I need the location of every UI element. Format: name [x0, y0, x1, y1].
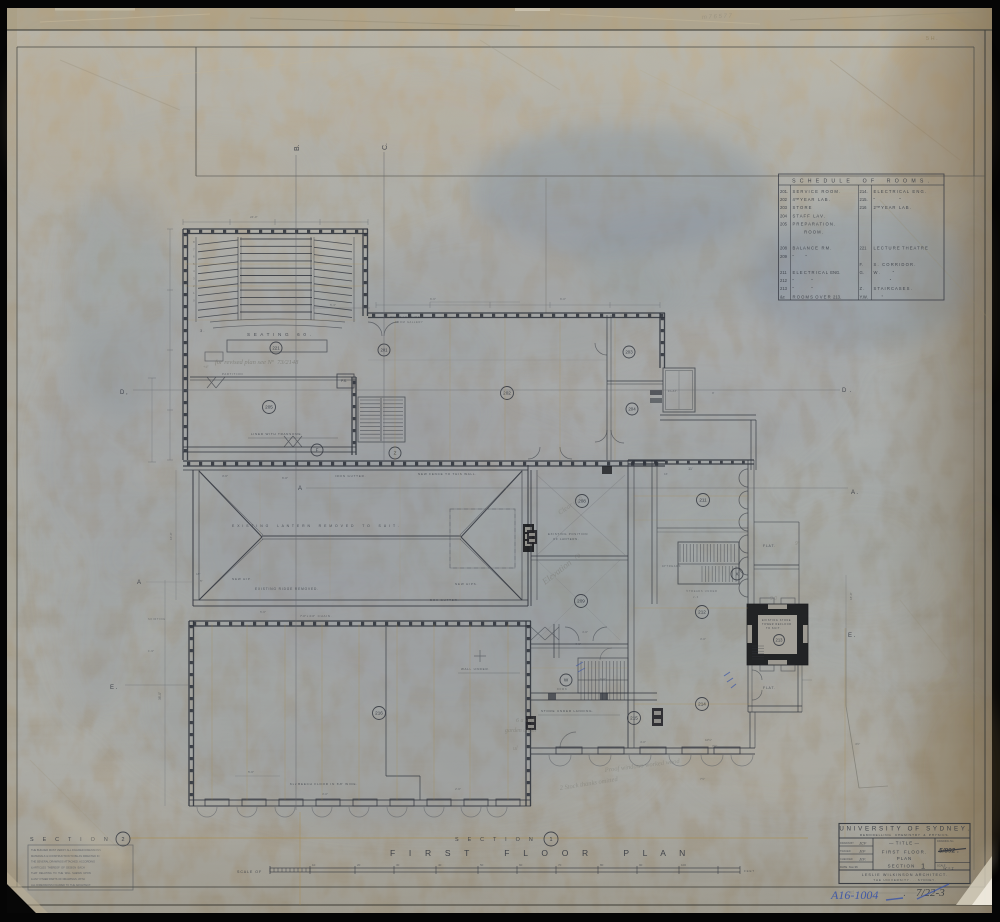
- svg-text:9 0: 9 0: [770, 596, 777, 602]
- svg-text:6'-6": 6'-6": [430, 297, 436, 301]
- svg-text:L E C T U R E T H E A T R E: L E C T U R E T H E A T R E: [874, 246, 929, 251]
- svg-text:ul: ul: [513, 746, 518, 752]
- svg-text:THE SEVERAL DRAWINGS ATTACHED.: THE SEVERAL DRAWINGS ATTACHED. ACCORDING: [31, 860, 95, 864]
- svg-text:38'-0": 38'-0": [158, 692, 162, 700]
- svg-text:2™ Y E A R L A B .: 2™ Y E A R L A B .: [874, 205, 911, 210]
- svg-text:6 x 2 B E E C H F L O O R: 6 x 2 B E E C H F L O O R I N 6'-6" W I …: [290, 782, 357, 786]
- svg-text:P A R T I T I O N: P A R T I T I O N: [222, 372, 243, 376]
- svg-text:5": 5": [200, 579, 203, 583]
- svg-text:A .: A .: [851, 490, 858, 496]
- svg-text:R O O M S O V E R 213.: R O O M S O V E R 213.: [793, 294, 842, 299]
- svg-text:N E W H I P S .: N E W H I P S .: [455, 582, 477, 586]
- svg-text:B A L A N C E R M .: B A L A N C E R M .: [793, 246, 832, 251]
- svg-text:P L A N: P L A N: [897, 856, 911, 861]
- svg-text:TRACED: TRACED: [840, 849, 851, 853]
- svg-text:E L E C T R I C A L E N G .: E L E C T R I C A L E N G .: [874, 189, 927, 194]
- svg-text:L I N E D W I T H T R A N: L I N E D W I T H T R A N S O M E .: [251, 432, 302, 436]
- svg-text:S K I R T I N G: S K I R T I N G: [148, 617, 165, 621]
- svg-text:205: 205: [780, 221, 788, 226]
- svg-text:50: 50: [480, 863, 484, 867]
- svg-text:D ,: D ,: [120, 390, 128, 396]
- svg-text:D O W N: D O W N: [557, 688, 567, 691]
- svg-text:F R O M G A L L E R Y: F R O M G A L L E R Y: [395, 320, 423, 324]
- svg-text:& ARTICLES THEREOF OF DESIG: & ARTICLES THEREOF OF DESIGN EACH: [31, 865, 85, 869]
- svg-text:I R O N G U T T E R .: I R O N G U T T E R .: [335, 474, 366, 478]
- svg-text:A: A: [137, 580, 141, 586]
- svg-text:1: 1: [921, 862, 925, 871]
- svg-text:A16-1004: A16-1004: [830, 888, 878, 902]
- svg-text:S E R V I C E R O O M .: S E R V I C E R O O M .: [793, 189, 841, 194]
- svg-text:G.: G.: [860, 270, 864, 275]
- svg-text:F: F: [316, 448, 319, 453]
- svg-text:3'-6": 3'-6": [222, 474, 228, 478]
- svg-text:N E W H I P .: N E W H I P .: [232, 577, 252, 581]
- svg-text:JcF.: JcF.: [858, 857, 866, 862]
- svg-text:221: 221: [860, 246, 868, 251]
- svg-text:B.: B.: [294, 144, 301, 151]
- svg-text:F L A T .: F L A T .: [668, 389, 678, 393]
- svg-text:MATERIALS & CONSTRUCTION TO BE: MATERIALS & CONSTRUCTION TO BE AS DIRECT…: [31, 854, 99, 858]
- svg-text:212: 212: [698, 610, 706, 615]
- svg-text:5'-6": 5'-6": [248, 770, 254, 774]
- svg-text:S E C T I O N: S E C T I O N: [455, 837, 535, 843]
- svg-text:2 - 6: 2 - 6: [693, 595, 699, 599]
- svg-text:— T I T L E —: — T I T L E —: [889, 841, 920, 846]
- svg-text:215.: 215.: [860, 197, 868, 202]
- svg-text:”: ”: [874, 278, 892, 283]
- svg-text:W . ”: W . ”: [874, 270, 895, 275]
- svg-text:7½": 7½": [712, 744, 717, 748]
- svg-text:E X I S T I N G S T O N E: E X I S T I N G S T O N E: [762, 619, 791, 622]
- svg-text:212: 212: [780, 278, 788, 283]
- svg-text:216: 216: [860, 205, 868, 210]
- svg-text:S C A L E O F: S C A L E O F: [237, 870, 262, 874]
- svg-text:DATE Nov 36: DATE Nov 36: [840, 865, 858, 869]
- svg-text:203: 203: [780, 205, 788, 210]
- svg-text:F L A T .: F L A T .: [763, 686, 775, 690]
- svg-text:213: 213: [780, 286, 788, 291]
- svg-text:202: 202: [780, 197, 788, 202]
- svg-text:6'-6": 6'-6": [600, 677, 606, 681]
- svg-text:18'-0": 18'-0": [849, 592, 853, 600]
- svg-text:R E M O D E L L I N G C H: R E M O D E L L I N G C H E M I S T R Y …: [860, 833, 949, 837]
- svg-text:18": 18": [196, 572, 200, 576]
- svg-text:.: .: [903, 888, 906, 899]
- svg-text:P R E P A R A T I O N .: P R E P A R A T I O N .: [793, 221, 836, 226]
- svg-text:216: 216: [375, 711, 383, 716]
- svg-text:DRAWN BY: DRAWN BY: [840, 841, 854, 845]
- svg-text:D .: D .: [842, 388, 852, 394]
- svg-text:24'-0": 24'-0": [250, 215, 258, 219]
- svg-text:DRAWING No: DRAWING No: [937, 839, 954, 843]
- svg-text:S T A F F L A V .: S T A F F L A V .: [793, 213, 826, 218]
- svg-text:JcF: JcF: [858, 849, 866, 854]
- svg-text:221: 221: [272, 346, 280, 351]
- svg-text:11': 11': [688, 466, 693, 471]
- svg-text:100: 100: [681, 863, 686, 867]
- svg-text:” ”: ” ”: [793, 254, 808, 259]
- svg-text:1: 1: [550, 837, 553, 843]
- svg-text:garden under: garden under: [505, 728, 538, 734]
- svg-text:5 H .: 5 H .: [926, 36, 938, 42]
- svg-text:E L E C T R I C A L ENG.: E L E C T R I C A L ENG.: [793, 270, 841, 275]
- svg-text:215: 215: [630, 716, 638, 721]
- svg-text:S E C T I O N: S E C T I O N: [888, 864, 915, 869]
- svg-text:T O W E R R E F L O O R: T O W E R R E F L O O R: [762, 623, 791, 626]
- svg-text:9°: 9°: [795, 541, 800, 547]
- svg-text:10½": 10½": [705, 738, 712, 742]
- svg-text:+4′: +4′: [203, 364, 209, 369]
- svg-text:204: 204: [628, 407, 636, 412]
- svg-text:6 a with: 6 a with: [516, 718, 535, 724]
- svg-text:202: 202: [503, 391, 511, 396]
- svg-text:40: 40: [438, 863, 442, 867]
- svg-text:THAT RELATING TO THE WILL: THAT RELATING TO THE WILL SHEWN UPON: [31, 871, 91, 875]
- svg-text:” ”: ” ”: [793, 286, 814, 291]
- svg-text:16'' T R E A D S: 16'' T R E A D S: [662, 564, 681, 568]
- svg-text:U N I V E R S I T Y O F S: U N I V E R S I T Y O F S Y D N E Y .: [839, 826, 969, 833]
- svg-text:R O O M .: R O O M .: [793, 230, 823, 235]
- svg-text:F L A T .: F L A T .: [763, 544, 775, 548]
- svg-text:P.S.: P.S.: [341, 379, 347, 383]
- svg-text:7½": 7½": [700, 777, 705, 781]
- svg-text:E .: E .: [848, 633, 856, 639]
- svg-text:4½": 4½": [855, 742, 860, 746]
- svg-text:”: ”: [874, 294, 884, 299]
- svg-text:90: 90: [639, 863, 643, 867]
- svg-text:201.: 201.: [780, 189, 788, 194]
- svg-text:16'-0": 16'-0": [169, 532, 173, 540]
- svg-text:B O X G U T T E R .: B O X G U T T E R .: [430, 598, 459, 602]
- svg-text:10: 10: [312, 863, 316, 867]
- svg-text:4'-6": 4'-6": [582, 630, 588, 634]
- svg-text:80: 80: [600, 863, 604, 867]
- svg-text:7'-0" x 4'-6" C H A I N .: 7'-0" x 4'-6" C H A I N .: [300, 614, 332, 618]
- svg-text:W: W: [564, 678, 569, 683]
- svg-text:O F L A N T E R N .: O F L A N T E R N .: [553, 537, 579, 541]
- svg-text:E X I S T I N G R I D G E: E X I S T I N G R I D G E R E M O V E D …: [255, 587, 318, 591]
- svg-text:3'-0": 3'-0": [700, 637, 706, 641]
- svg-text:F I R S T F L O O R .: F I R S T F L O O R .: [882, 850, 927, 855]
- svg-text:½ T R E A D S U N D E R: ½ T R E A D S U N D E R: [686, 589, 717, 593]
- svg-text:1'-9": 1'-9": [148, 649, 154, 653]
- svg-text:L E S L I E W I L K I N S O: L E S L I E W I L K I N S O N A R C H I …: [862, 873, 947, 877]
- svg-text:16': 16': [664, 472, 668, 476]
- svg-text:A: A: [298, 486, 302, 492]
- svg-text:4'-0": 4'-0": [640, 740, 646, 744]
- svg-text:E .: E .: [110, 685, 118, 691]
- svg-text:S T O R E: S T O R E: [793, 205, 812, 210]
- svg-text:T O S U I T .: T O S U I T .: [766, 627, 781, 630]
- svg-text:F.: F.: [860, 262, 863, 267]
- svg-text:” ”: ” ”: [874, 197, 902, 202]
- svg-text:213: 213: [776, 638, 784, 643]
- svg-text:S T O R E U N D E R L A N: S T O R E U N D E R L A N D I N G .: [541, 709, 593, 713]
- svg-text:&c: &c: [780, 294, 785, 299]
- svg-text:S T A I R C A S E S .: S T A I R C A S E S .: [874, 286, 912, 291]
- svg-text:⅛" = 1': ⅛" = 1': [943, 867, 954, 871]
- svg-text:F I R S T F L O O: F I R S T F L O O R P L A N: [390, 848, 688, 858]
- svg-text:30: 30: [396, 863, 400, 867]
- svg-text:F E E T: F E E T: [744, 869, 754, 873]
- svg-text:S C H E D U L E O F R O: S C H E D U L E O F R O O M S .: [792, 178, 930, 184]
- svg-text:JCF: JCF: [858, 841, 867, 846]
- svg-text:3 .: 3 .: [200, 328, 204, 333]
- svg-text:70: 70: [558, 863, 562, 867]
- svg-text:& ANY OTHER PARTS OF DRAWINGS.: & ANY OTHER PARTS OF DRAWINGS. WITH: [31, 877, 85, 881]
- svg-text:5'-3": 5'-3": [330, 303, 336, 307]
- svg-text:211: 211: [699, 498, 707, 503]
- svg-text:S . C O R R I D O R .: S . C O R R I D O R .: [874, 262, 916, 267]
- svg-text:214.: 214.: [860, 189, 868, 194]
- svg-text:3'-0": 3'-0": [322, 792, 328, 796]
- svg-text:4'-6": 4'-6": [575, 642, 581, 646]
- svg-text:20: 20: [357, 863, 361, 867]
- svg-text:Y.W.: Y.W.: [860, 294, 868, 299]
- svg-text:Z .: Z .: [860, 286, 865, 291]
- svg-text:60: 60: [519, 863, 523, 867]
- svg-text:205: 205: [265, 405, 273, 410]
- svg-text:W A L L U N D E R .: W A L L U N D E R .: [461, 667, 489, 671]
- svg-text:E X I S T I N G P O S I T I: E X I S T I N G P O S I T I O N: [548, 532, 587, 536]
- svg-text:ALL DIMENSIONS FIGURED TO THE: ALL DIMENSIONS FIGURED TO THE ARCHITECT.: [31, 883, 91, 887]
- svg-text:CHECKED: CHECKED: [840, 857, 853, 861]
- svg-text:209: 209: [780, 254, 788, 259]
- svg-text:6'-0": 6'-0": [282, 476, 288, 480]
- svg-text:st: st: [850, 890, 855, 896]
- svg-text:5'-6": 5'-6": [260, 610, 266, 614]
- svg-text:T H E U N I V E R S I T Y .: T H E U N I V E R S I T Y . . . S Y D N …: [873, 878, 936, 882]
- svg-text:E X I S T I N G L A N T E R: E X I S T I N G L A N T E R N R E M O V …: [232, 524, 400, 528]
- svg-text:204: 204: [780, 213, 788, 218]
- svg-text:C.: C.: [382, 143, 389, 150]
- svg-text:for revised plan see Nº 73/21: for revised plan see Nº 73/2148: [215, 359, 299, 366]
- svg-text:211: 211: [780, 270, 787, 275]
- svg-text:X: X: [735, 572, 738, 577]
- svg-text:208: 208: [780, 246, 788, 251]
- svg-text:N E W F E N C E T O T H: N E W F E N C E T O T H I S W A L L .: [418, 472, 476, 476]
- svg-text:6'-0": 6'-0": [560, 297, 566, 301]
- svg-text:S E A T I N G 6 0 .: S E A T I N G 6 0 .: [247, 332, 312, 337]
- svg-text:” ”: ” ”: [793, 278, 814, 283]
- svg-text:4™ Y E A R L A B .: 4™ Y E A R L A B .: [793, 197, 830, 202]
- svg-text:203: 203: [625, 350, 633, 355]
- svg-text:2'-6": 2'-6": [455, 787, 461, 791]
- svg-text:2: 2: [122, 837, 125, 843]
- svg-text:THE BUILDER MUST VERIFY ALL FI: THE BUILDER MUST VERIFY ALL FIGURED DIME…: [31, 848, 101, 852]
